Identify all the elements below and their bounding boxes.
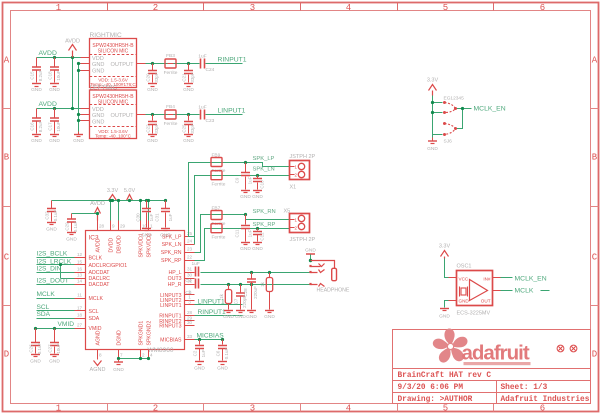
svg-text:GND: GND [113,367,124,373]
svg-text:24: 24 [187,239,193,244]
svg-text:3: 3 [250,3,255,13]
svg-text:SDA: SDA [89,316,100,322]
svg-text:SPK_LN: SPK_LN [253,167,275,173]
svg-text:10uF: 10uF [56,343,61,354]
svg-text:3.3V: 3.3V [107,188,119,194]
svg-text:FB4: FB4 [166,104,175,110]
svg-text:I2S_DIN: I2S_DIN [37,266,62,273]
svg-text:ECS-3225MV: ECS-3225MV [457,311,491,317]
svg-text:C6: C6 [216,350,221,356]
svg-text:X1: X1 [290,185,297,191]
svg-text:1uF: 1uF [149,213,154,221]
svg-text:5: 5 [443,404,448,413]
svg-text:OUT: OUT [481,299,491,304]
svg-text:33pF: 33pF [154,72,159,83]
svg-text:SPK_RN: SPK_RN [253,209,276,215]
svg-text:1uF: 1uF [198,105,206,111]
svg-text:GND: GND [240,246,251,252]
svg-text:B: B [4,153,10,163]
svg-text:3: 3 [188,300,191,305]
svg-text:C22: C22 [146,124,151,133]
svg-text:SPKGND2: SPKGND2 [147,321,153,346]
svg-text:C7: C7 [234,298,239,304]
svg-text:C20: C20 [146,73,151,82]
svg-text:13: 13 [77,273,83,278]
svg-text:BrainCraft HAT rev C: BrainCraft HAT rev C [398,372,492,380]
svg-text:A: A [592,56,598,66]
svg-text:7: 7 [120,353,123,358]
svg-text:10uF: 10uF [56,121,61,132]
svg-text:C12: C12 [260,232,265,241]
svg-text:MCLK_EN: MCLK_EN [474,106,506,113]
svg-text:D: D [592,350,597,360]
svg-text:GND: GND [66,237,77,243]
svg-text:GND: GND [92,68,104,74]
svg-text:C11: C11 [235,229,240,237]
svg-text:3.3V: 3.3V [427,78,439,84]
svg-text:31: 31 [187,267,193,272]
svg-text:GND: GND [252,194,263,200]
svg-text:C2: C2 [193,350,198,356]
svg-text:8.2uF: 8.2uF [38,69,43,81]
svg-text:33: 33 [187,334,193,339]
svg-text:IN#: IN# [483,277,491,282]
svg-text:HEADPHONE: HEADPHONE [317,288,350,294]
svg-text:GND: GND [305,248,316,254]
svg-text:A: A [4,56,10,66]
svg-text:SCL: SCL [37,304,50,311]
svg-text:10uF: 10uF [56,70,61,81]
svg-text:29: 29 [120,224,126,229]
svg-text:Temp: -40..100°C: Temp: -40..100°C [95,133,131,138]
svg-text:D: D [4,350,9,360]
svg-text:SPK_LP: SPK_LP [253,156,275,162]
svg-text:C26: C26 [29,344,34,353]
svg-text:MICBIAS: MICBIAS [197,333,225,340]
svg-text:C21: C21 [182,73,187,82]
svg-text:Ferrite: Ferrite [212,182,226,188]
svg-text:GND: GND [92,62,104,68]
svg-text:C15: C15 [30,71,35,80]
svg-text:6: 6 [540,404,545,413]
svg-text:1uF: 1uF [248,176,253,184]
svg-text:1uF: 1uF [201,349,206,357]
svg-text:30: 30 [187,273,193,278]
svg-text:GND: GND [49,87,60,93]
svg-text:27: 27 [77,323,83,328]
svg-text:C: C [4,253,10,263]
svg-text:GND: GND [252,246,263,252]
svg-text:11: 11 [77,293,82,298]
svg-text:15: 15 [77,260,83,265]
svg-text:MCLK: MCLK [89,296,104,302]
svg-text:GND: GND [235,314,246,320]
svg-text:AVDD: AVDD [39,101,57,108]
svg-text:C24: C24 [206,67,215,73]
svg-text:C: C [592,253,598,263]
svg-text:GND: GND [73,138,84,144]
svg-text:GND: GND [147,138,158,144]
svg-text:HP_R: HP_R [168,282,182,288]
svg-text:C29: C29 [65,222,70,231]
svg-text:GND: GND [183,138,194,144]
svg-text:C30: C30 [136,213,141,222]
svg-text:30: 30 [187,320,193,325]
svg-text:VCC: VCC [459,277,469,282]
svg-text:SPKGND1: SPKGND1 [139,321,145,346]
svg-text:17: 17 [77,306,83,311]
svg-text:8.2uF: 8.2uF [38,120,43,132]
svg-text:GND: GND [160,233,171,239]
svg-text:OUTPUT: OUTPUT [111,62,135,68]
svg-text:GND: GND [459,299,470,304]
svg-text:GND: GND [30,359,41,365]
svg-text:GND: GND [264,314,275,320]
svg-text:GND: GND [31,138,42,144]
svg-text:GND: GND [427,146,438,152]
svg-text:GND: GND [217,366,228,372]
svg-text:220uF: 220uF [253,286,258,299]
svg-text:DGND: DGND [117,330,123,346]
svg-text:DACDAT: DACDAT [89,282,111,288]
svg-text:AGND: AGND [90,367,106,373]
svg-text:C17: C17 [48,122,53,131]
svg-text:JSTPH 2P: JSTPH 2P [290,237,316,243]
svg-text:GND: GND [92,113,104,119]
svg-text:33pF: 33pF [190,72,195,83]
svg-text:2: 2 [142,353,145,358]
svg-text:C27: C27 [48,344,53,353]
svg-text:GND: GND [141,233,152,239]
svg-text:25: 25 [187,231,193,236]
svg-text:AVDD: AVDD [65,39,80,45]
svg-text:0.1uF: 0.1uF [37,342,42,354]
svg-text:C23: C23 [206,118,215,124]
svg-text:16: 16 [77,267,83,272]
svg-text:SPK_RP: SPK_RP [161,258,182,264]
svg-text:GND: GND [31,87,42,93]
svg-text:GND: GND [223,314,234,320]
svg-text:Ferrite: Ferrite [212,235,226,241]
svg-text:LINPUT1: LINPUT1 [160,303,181,309]
svg-text:GND: GND [183,87,194,93]
svg-text:1k: 1k [219,293,224,299]
svg-text:C18: C18 [48,71,53,80]
svg-text:I2S_DOUT: I2S_DOUT [37,278,69,285]
svg-text:Ferrite: Ferrite [164,121,178,127]
svg-text:3: 3 [250,404,255,413]
svg-text:LINPUT1: LINPUT1 [218,108,246,115]
svg-text:Adafruit Industries: Adafruit Industries [501,396,590,404]
svg-text:MCLK_EN: MCLK_EN [515,276,547,283]
svg-text:0.1uF: 0.1uF [224,347,229,359]
svg-text:OUTPUT: OUTPUT [111,113,135,119]
svg-text:8: 8 [99,353,102,358]
svg-text:C28: C28 [243,288,248,297]
svg-text:1k: 1k [260,281,265,287]
svg-text:B: B [592,153,598,163]
svg-text:RINPUT1: RINPUT1 [218,57,247,64]
svg-text:OSC1: OSC1 [457,264,472,270]
svg-text:DVDD: DVDD [109,238,115,253]
svg-text:2: 2 [153,404,158,413]
svg-text:BCLK: BCLK [89,256,103,262]
svg-text:SPK_RN: SPK_RN [161,250,182,256]
svg-text:Ferrite: Ferrite [164,70,178,76]
svg-text:4: 4 [150,353,153,358]
svg-text:C4: C4 [185,278,191,284]
svg-text:9: 9 [112,224,115,229]
svg-text:SDA: SDA [37,311,51,318]
svg-text:28: 28 [99,224,105,229]
svg-text:AVDD: AVDD [96,238,102,252]
svg-text:GND: GND [49,138,60,144]
svg-text:28: 28 [187,310,193,315]
svg-text:GND: GND [240,194,251,200]
svg-text:1uF: 1uF [198,54,206,60]
svg-text:C10: C10 [260,180,265,189]
svg-text:GND: GND [439,314,450,320]
svg-text:Sheet: 1/3: Sheet: 1/3 [501,384,548,392]
svg-text:18: 18 [77,313,83,318]
svg-text:1uF: 1uF [168,213,173,221]
svg-text:JSTPH 2P: JSTPH 2P [290,154,316,160]
svg-text:SCL: SCL [89,309,99,315]
svg-text:MCLK: MCLK [37,291,56,298]
svg-text:GND: GND [194,366,205,372]
svg-text:SJ6: SJ6 [444,139,453,145]
svg-text:I2S_BCLK: I2S_BCLK [37,251,68,258]
svg-text:1uF: 1uF [248,229,253,237]
svg-text:MCLK: MCLK [515,288,534,295]
svg-text:4: 4 [346,404,351,413]
svg-text:MICBIAS: MICBIAS [160,338,182,344]
svg-text:GND: GND [92,119,104,125]
svg-text:33pF: 33pF [154,123,159,134]
svg-text:1uF: 1uF [192,261,200,267]
svg-text:SPK_LN: SPK_LN [162,242,182,248]
svg-text:C25: C25 [182,124,187,133]
svg-text:SILICON MIC: SILICON MIC [98,100,129,106]
svg-text:23: 23 [187,247,193,252]
svg-text:33pF: 33pF [190,123,195,134]
svg-text:GND: GND [246,314,257,320]
svg-text:C9: C9 [235,177,240,183]
svg-text:GND: GND [49,359,60,365]
svg-text:SPK_RP: SPK_RP [253,222,276,228]
svg-text:14: 14 [77,279,83,284]
svg-text:C5: C5 [185,290,191,296]
svg-text:3.3V: 3.3V [439,244,451,250]
svg-text:0.1uF: 0.1uF [73,220,78,232]
svg-text:AGND: AGND [96,330,102,345]
svg-text:C32: C32 [45,211,50,220]
svg-text:GND: GND [46,227,57,233]
svg-text:RINPUT1: RINPUT1 [198,309,227,316]
svg-text:0.1uF: 0.1uF [53,209,58,221]
svg-text:Drawing: >AUTHOR: Drawing: >AUTHOR [398,396,473,404]
svg-text:AVDD: AVDD [90,201,105,207]
svg-text:2: 2 [153,3,158,13]
svg-text:9/3/20 6:06 PM: 9/3/20 6:06 PM [398,384,464,392]
svg-text:FB3: FB3 [166,53,175,59]
svg-text:1: 1 [150,224,153,229]
svg-text:5.0V: 5.0V [124,188,136,194]
svg-text:adafruit: adafruit [462,342,530,365]
svg-text:C31: C31 [155,213,160,222]
svg-text:EG12345: EG12345 [444,96,465,102]
svg-text:AVDD: AVDD [39,50,57,57]
svg-text:1: 1 [56,404,61,413]
svg-text:VMID: VMID [58,321,75,328]
svg-text:1: 1 [56,3,61,13]
svg-text:5: 5 [443,3,448,13]
svg-text:DBVDD: DBVDD [117,235,123,253]
svg-text:12: 12 [77,252,83,257]
svg-text:SILICON MIC: SILICON MIC [98,49,129,55]
svg-text:6: 6 [540,3,545,13]
svg-text:ADCLRC/GPIO1: ADCLRC/GPIO1 [89,263,128,269]
svg-text:RINPUT3: RINPUT3 [159,324,181,330]
svg-text:22: 22 [187,255,193,260]
svg-text:C16: C16 [30,122,35,131]
svg-text:I2S_LRCLK: I2S_LRCLK [37,259,72,266]
svg-text:GND: GND [147,87,158,93]
svg-text:4: 4 [346,3,351,13]
